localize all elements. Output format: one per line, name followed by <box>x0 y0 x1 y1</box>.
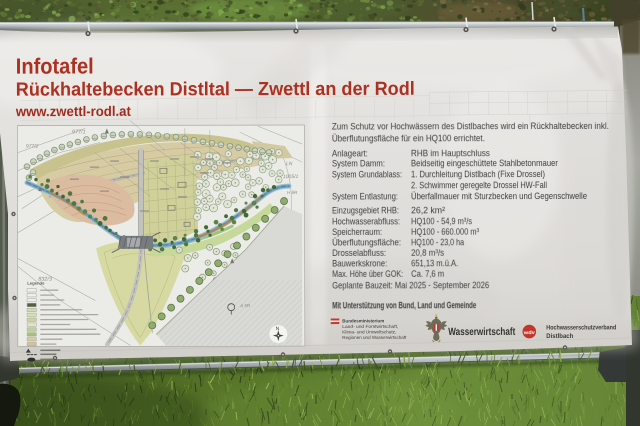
svg-text:Hochwasserschutzverband: Hochwasserschutzverband <box>546 324 616 331</box>
svg-text:2. Schwimmer geregelte Drossel: 2. Schwimmer geregelte Drossel HW-Fall <box>411 180 547 190</box>
svg-text:Speicherraum:: Speicherraum: <box>332 227 382 237</box>
svg-text:Anlageart:: Anlageart: <box>332 148 368 158</box>
svg-text:www.zwettl-rodl.at: www.zwettl-rodl.at <box>15 103 131 119</box>
svg-text:Klima- und Umweltschutz,: Klima- und Umweltschutz, <box>342 329 396 334</box>
svg-text:Distlbach: Distlbach <box>546 333 573 340</box>
svg-text:System Entlastung:: System Entlastung: <box>332 191 398 201</box>
svg-text:651,13 m.ü.A.: 651,13 m.ü.A. <box>411 258 458 268</box>
svg-text:System Grundablass:: System Grundablass: <box>332 169 402 179</box>
svg-text:HQ100 - 660.000 m³: HQ100 - 660.000 m³ <box>411 227 479 237</box>
svg-text:Beidseitig eingeschüttete Stah: Beidseitig eingeschüttete Stahlbetonmaue… <box>411 158 558 168</box>
svg-text:Überflutungsfläche für ein HQ1: Überflutungsfläche für ein HQ100 erricht… <box>332 133 485 143</box>
svg-text:Zum Schutz vor Hochwässern des: Zum Schutz vor Hochwässern des Distlbach… <box>332 121 609 132</box>
svg-text:Hochwasserabfluss:: Hochwasserabfluss: <box>332 216 400 226</box>
svg-text:Überflutungsfläche:: Überflutungsfläche: <box>332 238 401 248</box>
svg-text:Bundesministerium: Bundesministerium <box>342 318 384 323</box>
svg-text:Max. Höhe über GOK:: Max. Höhe über GOK: <box>332 269 403 279</box>
svg-text:Drosselabfluss:: Drosselabfluss: <box>332 248 386 258</box>
svg-text:wdv: wdv <box>523 330 535 336</box>
svg-text:RHB im Hauptschluss: RHB im Hauptschluss <box>411 148 490 158</box>
svg-text:Bauwerkskrone:: Bauwerkskrone: <box>332 258 387 268</box>
svg-text:Mit Unterstützung von Bund, La: Mit Unterstützung von Bund, Land und Gem… <box>332 300 476 310</box>
svg-text:Wasserwirtschaft: Wasserwirtschaft <box>448 326 515 338</box>
svg-text:Einzugsgebiet RHB:: Einzugsgebiet RHB: <box>332 205 399 215</box>
svg-text:Ca. 7,6 m: Ca. 7,6 m <box>411 269 444 279</box>
svg-text:1. Durchleitung Distlbach (Fix: 1. Durchleitung Distlbach (Fixe Drossel) <box>411 169 545 179</box>
svg-text:Land- und Forstwirtschaft,: Land- und Forstwirtschaft, <box>342 324 398 329</box>
svg-text:Überfallmauer mit Sturzbecken: Überfallmauer mit Sturzbecken und Gegens… <box>411 191 587 201</box>
svg-text:Regionen und Wasserwirtschaft: Regionen und Wasserwirtschaft <box>342 335 407 340</box>
svg-text:26,2 km²: 26,2 km² <box>411 205 445 215</box>
svg-text:HQ100 - 54,9 m³/s: HQ100 - 54,9 m³/s <box>411 216 472 226</box>
svg-text:Infotafel: Infotafel <box>16 53 94 78</box>
svg-text:Rückhaltebecken Distltal — Zwe: Rückhaltebecken Distltal — Zwettl an der… <box>16 79 415 101</box>
svg-text:Geplante Bauzeit: Mai 2025 - S: Geplante Bauzeit: Mai 2025 - September 2… <box>332 280 489 290</box>
svg-text:System Damm:: System Damm: <box>332 158 385 168</box>
svg-text:20,8 m³/s: 20,8 m³/s <box>411 248 444 258</box>
svg-text:HQ100 - 23,0 ha: HQ100 - 23,0 ha <box>411 237 465 247</box>
